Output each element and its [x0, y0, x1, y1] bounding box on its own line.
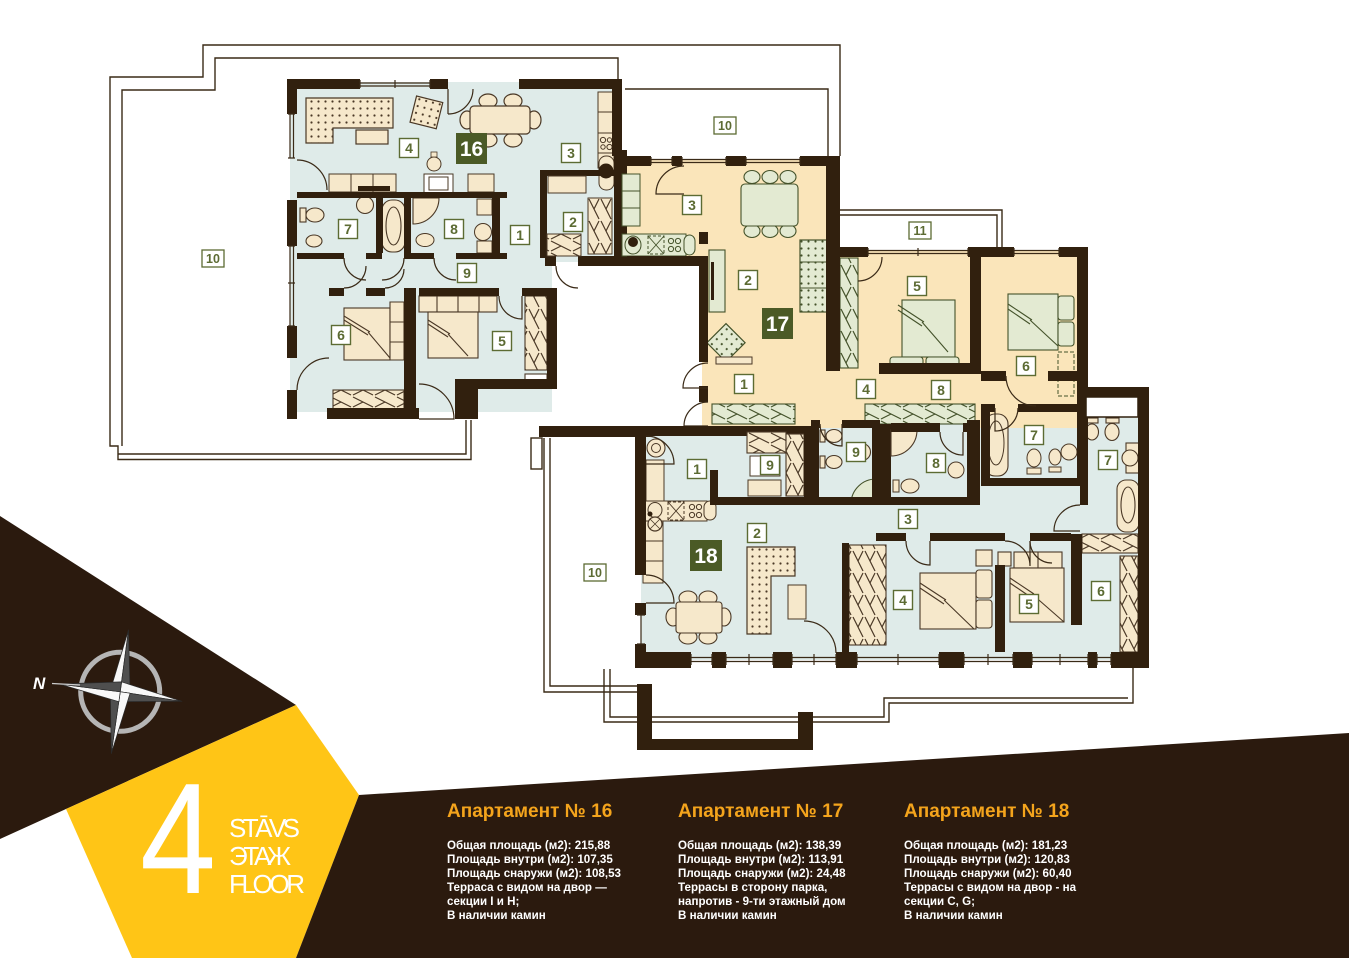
svg-text:6: 6 [1097, 583, 1105, 599]
svg-text:Площадь внутри (м2): 113,91: Площадь внутри (м2): 113,91 [678, 853, 844, 866]
svg-text:3: 3 [688, 197, 696, 213]
svg-text:5: 5 [913, 278, 921, 294]
svg-text:7: 7 [1030, 427, 1038, 443]
svg-text:9: 9 [463, 265, 471, 281]
svg-text:В наличии камин: В наличии камин [678, 909, 777, 922]
svg-text:10: 10 [588, 566, 602, 580]
svg-text:1: 1 [516, 227, 524, 243]
svg-text:7: 7 [1104, 452, 1112, 468]
svg-text:Апартамент № 17: Апартамент № 17 [678, 801, 843, 822]
svg-text:7: 7 [344, 221, 352, 237]
svg-text:Апартамент № 18: Апартамент № 18 [904, 801, 1069, 822]
svg-text:Площадь снаружи (м2): 24,48: Площадь снаружи (м2): 24,48 [678, 867, 846, 880]
svg-text:9: 9 [852, 444, 860, 460]
svg-text:Площадь снаружи (м2): 60,40: Площадь снаружи (м2): 60,40 [904, 867, 1072, 880]
svg-text:5: 5 [1025, 596, 1033, 612]
svg-text:2: 2 [569, 214, 577, 230]
svg-text:3: 3 [904, 511, 912, 527]
svg-text:Площадь внутри (м2): 107,35: Площадь внутри (м2): 107,35 [447, 853, 613, 866]
svg-text:Терраса с видом на двор —: Терраса с видом на двор — [447, 881, 607, 894]
svg-text:1: 1 [740, 376, 748, 392]
svg-text:8: 8 [932, 455, 940, 471]
svg-text:4: 4 [862, 381, 870, 397]
svg-text:2: 2 [753, 525, 761, 541]
svg-text:8: 8 [937, 382, 945, 398]
svg-text:16: 16 [460, 138, 483, 161]
svg-text:4: 4 [405, 140, 413, 156]
svg-text:FLOOR: FLOOR [229, 869, 305, 899]
svg-text:секции I и Н;: секции I и Н; [447, 895, 519, 908]
svg-text:3: 3 [567, 145, 575, 161]
svg-text:11: 11 [913, 224, 926, 238]
svg-text:10: 10 [206, 252, 220, 266]
svg-text:6: 6 [337, 327, 345, 343]
svg-text:В наличии камин: В наличии камин [447, 909, 546, 922]
svg-text:2: 2 [744, 272, 752, 288]
svg-text:ЭТАЖ: ЭТАЖ [229, 841, 291, 871]
svg-text:10: 10 [718, 119, 732, 133]
svg-text:6: 6 [1022, 358, 1030, 374]
svg-text:4: 4 [899, 592, 907, 608]
svg-text:В наличии камин: В наличии камин [904, 909, 1003, 922]
svg-text:9: 9 [766, 457, 774, 473]
svg-text:5: 5 [498, 333, 506, 349]
svg-text:Апартамент № 16: Апартамент № 16 [447, 801, 612, 822]
svg-text:N: N [33, 674, 46, 693]
svg-text:4: 4 [140, 751, 216, 927]
svg-text:Общая площадь (м2): 181,23: Общая площадь (м2): 181,23 [904, 839, 1068, 852]
svg-text:1: 1 [693, 461, 701, 477]
svg-text:Площадь внутри (м2): 120,83: Площадь внутри (м2): 120,83 [904, 853, 1070, 866]
svg-text:Террасы в сторону парка,: Террасы в сторону парка, [678, 881, 827, 894]
svg-text:STĀVS: STĀVS [229, 813, 300, 843]
svg-text:Общая площадь (м2): 215,88: Общая площадь (м2): 215,88 [447, 839, 611, 852]
svg-text:Общая площадь (м2): 138,39: Общая площадь (м2): 138,39 [678, 839, 842, 852]
svg-text:8: 8 [450, 221, 458, 237]
svg-text:Площадь снаружи (м2): 108,53: Площадь снаружи (м2): 108,53 [447, 867, 622, 880]
svg-text:напротив - 9-ти этажный дом: напротив - 9-ти этажный дом [678, 895, 846, 908]
svg-text:18: 18 [694, 545, 718, 568]
svg-text:17: 17 [766, 313, 789, 336]
svg-text:секции C, G;: секции C, G; [904, 895, 975, 908]
svg-text:Террасы с видом на двор - на: Террасы с видом на двор - на [904, 881, 1077, 894]
